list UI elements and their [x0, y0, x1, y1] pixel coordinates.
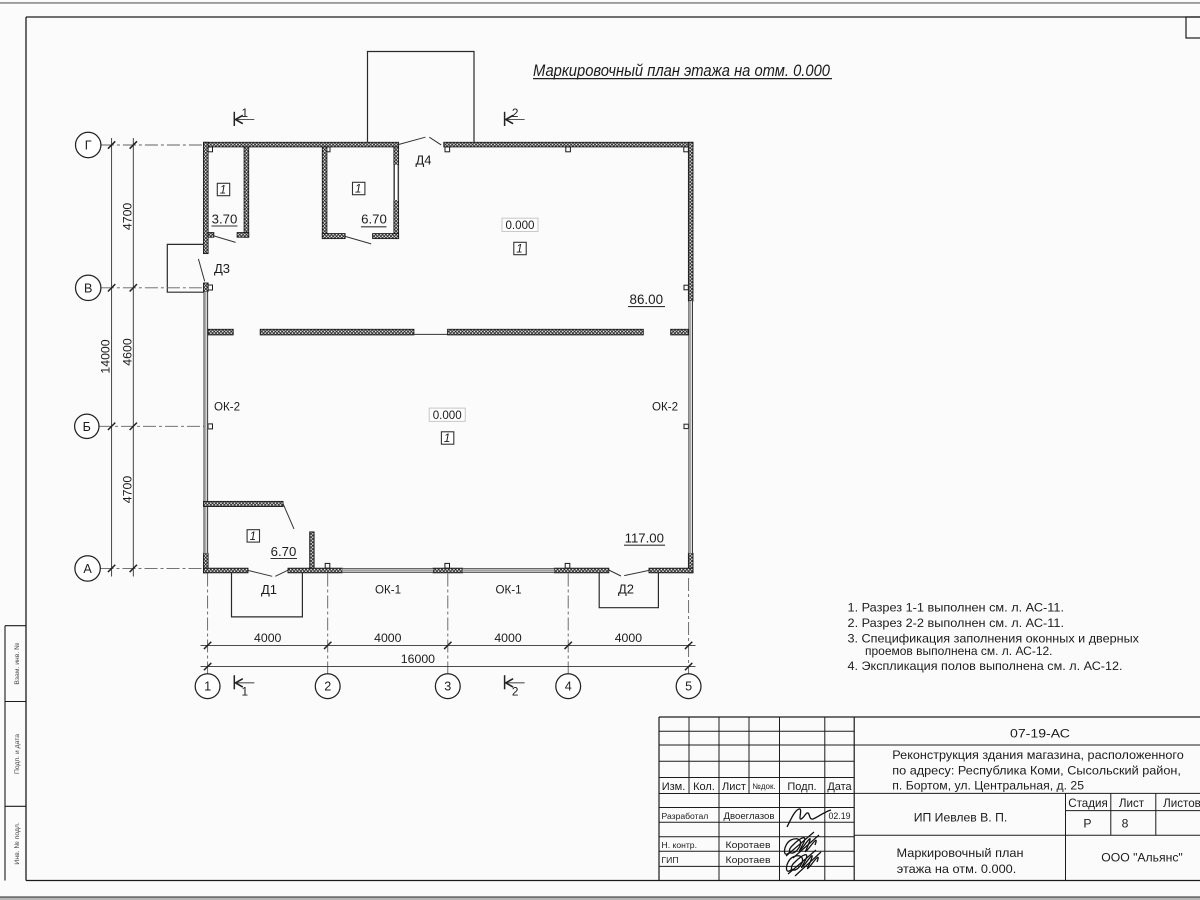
svg-text:Д2: Д2	[618, 582, 634, 597]
svg-text:Д3: Д3	[214, 261, 230, 276]
svg-text:Разработал: Разработал	[662, 811, 709, 821]
svg-text:2: 2	[512, 106, 519, 120]
svg-text:1: 1	[242, 684, 249, 698]
svg-text:ООО "Альянс": ООО "Альянс"	[1101, 851, 1183, 865]
svg-text:2: 2	[324, 680, 331, 694]
svg-text:Кол.: Кол.	[693, 781, 715, 793]
svg-text:1: 1	[220, 185, 226, 197]
svg-text:Коротаев: Коротаев	[726, 840, 771, 851]
svg-text:4000: 4000	[374, 631, 402, 645]
svg-text:Изм.: Изм.	[662, 781, 686, 793]
svg-text:этажа на отм. 0.000.: этажа на отм. 0.000.	[897, 862, 1017, 876]
svg-text:1: 1	[355, 184, 361, 196]
svg-text:1: 1	[444, 433, 450, 445]
svg-text:Маркировочный план этажа на от: Маркировочный план этажа на отм. 0.000	[533, 61, 830, 80]
svg-text:14000: 14000	[99, 339, 113, 373]
svg-text:Реконструкция здания магазина,: Реконструкция здания магазина, расположе…	[892, 748, 1184, 762]
svg-text:А: А	[83, 562, 92, 576]
svg-text:16000: 16000	[401, 652, 435, 666]
svg-text:ОК-2: ОК-2	[652, 401, 678, 414]
svg-text:ОК-1: ОК-1	[495, 583, 521, 596]
svg-text:В: В	[84, 281, 92, 295]
svg-text:Листов: Листов	[1163, 797, 1200, 810]
svg-text:1: 1	[242, 106, 249, 120]
svg-text:6.70: 6.70	[361, 212, 387, 227]
svg-text:02.19: 02.19	[828, 811, 850, 821]
svg-text:3: 3	[444, 680, 451, 694]
svg-text:6.70: 6.70	[271, 544, 297, 559]
svg-text:Д4: Д4	[416, 152, 432, 167]
svg-text:4000: 4000	[254, 631, 282, 645]
svg-text:4600: 4600	[121, 338, 135, 366]
svg-text:4000: 4000	[494, 631, 522, 645]
svg-text:3.70: 3.70	[212, 212, 238, 227]
svg-text:Двоеглазов: Двоеглазов	[724, 811, 775, 822]
svg-text:3. Спецификация заполнения око: 3. Спецификация заполнения оконных и две…	[848, 633, 1140, 646]
svg-text:Взам. инв. №: Взам. инв. №	[14, 643, 21, 685]
svg-text:86.00: 86.00	[630, 292, 664, 307]
svg-text:Инв. № подл.: Инв. № подл.	[14, 822, 21, 864]
svg-text:Г: Г	[85, 139, 92, 153]
svg-text:ГИП: ГИП	[662, 855, 679, 865]
svg-text:Стадия: Стадия	[1068, 797, 1108, 810]
svg-text:0.000: 0.000	[433, 409, 462, 422]
svg-text:2. Разрез 2-2 выполнен см. л.: 2. Разрез 2-2 выполнен см. л. АС-11.	[848, 617, 1065, 630]
svg-text:№док.: №док.	[752, 782, 775, 791]
svg-text:4700: 4700	[121, 476, 135, 504]
svg-text:4. Экспликация полов выполнена: 4. Экспликация полов выполнена см. л. АС…	[848, 660, 1123, 673]
svg-text:Подп.: Подп.	[787, 781, 816, 793]
svg-text:Д1: Д1	[261, 582, 277, 597]
svg-text:Подп. и дата: Подп. и дата	[14, 734, 21, 774]
svg-text:117.00: 117.00	[625, 531, 664, 546]
svg-text:8: 8	[1122, 816, 1129, 830]
svg-text:Лист: Лист	[722, 781, 746, 793]
svg-text:Дата: Дата	[827, 781, 852, 793]
svg-text:2: 2	[512, 684, 519, 698]
svg-text:проемов выполнена см. л. АС-12: проемов выполнена см. л. АС-12.	[865, 645, 1053, 658]
svg-text:4000: 4000	[615, 631, 643, 645]
svg-text:ОК-1: ОК-1	[375, 583, 401, 596]
svg-text:07-19-АС: 07-19-АС	[1010, 727, 1070, 741]
svg-text:1: 1	[516, 244, 522, 256]
svg-text:4700: 4700	[121, 203, 135, 231]
svg-text:Маркировочный план: Маркировочный план	[897, 846, 1024, 860]
svg-text:Н. контр.: Н. контр.	[662, 840, 697, 850]
svg-text:по адресу: Республика Коми, Сы: по адресу: Республика Коми, Сысольский р…	[892, 764, 1181, 778]
svg-text:0.000: 0.000	[505, 219, 534, 232]
svg-text:1: 1	[204, 680, 211, 694]
svg-text:Б: Б	[83, 420, 91, 434]
svg-text:Р: Р	[1083, 816, 1091, 830]
svg-text:1: 1	[250, 531, 256, 543]
svg-text:Лист: Лист	[1119, 797, 1145, 810]
svg-text:4: 4	[565, 680, 572, 694]
svg-text:1. Разрез 1-1 выполнен см. л.: 1. Разрез 1-1 выполнен см. л. АС-11.	[848, 601, 1065, 614]
svg-text:ОК-2: ОК-2	[214, 401, 240, 414]
svg-text:5: 5	[685, 680, 692, 694]
svg-text:Коротаев: Коротаев	[726, 855, 771, 866]
svg-text:ИП Иевлев В. П.: ИП Иевлев В. П.	[914, 811, 1007, 825]
svg-text:п. Бортом, ул. Центральная, д.: п. Бортом, ул. Центральная, д. 25	[892, 779, 1084, 793]
